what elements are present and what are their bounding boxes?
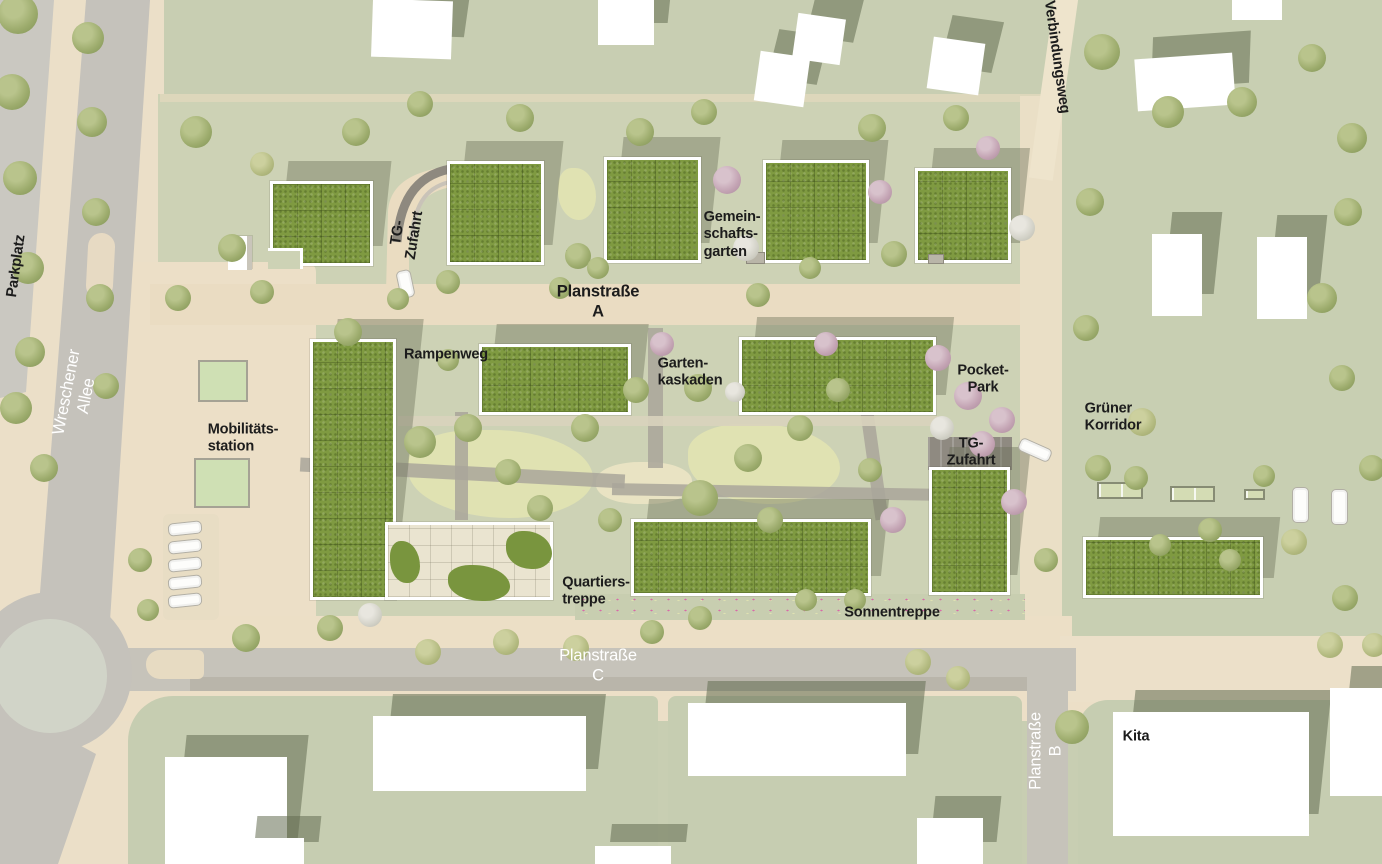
tree: [746, 283, 770, 307]
traffic-island: [146, 650, 204, 679]
block-sued: [631, 519, 871, 596]
label-planstrasse-c: Planstraße C: [559, 645, 637, 684]
tree: [1307, 283, 1337, 313]
label-mobilitaetsstation: Mobilitäts- station: [208, 421, 279, 456]
context-building: [688, 703, 906, 776]
tree: [799, 257, 821, 279]
tree: [436, 270, 460, 294]
tree: [976, 136, 1000, 160]
tree: [943, 105, 969, 131]
label-quartierstreppe: Quartiers- treppe: [562, 574, 630, 609]
label-gruener-korridor: Grüner Korridor: [1085, 400, 1142, 435]
tree: [407, 91, 433, 117]
tree: [795, 589, 817, 611]
tree: [946, 666, 970, 690]
tree: [1332, 585, 1358, 611]
tree: [1334, 198, 1362, 226]
tree: [77, 107, 107, 137]
tree: [905, 649, 931, 675]
roof-notch: [268, 248, 303, 269]
tree: [640, 620, 664, 644]
tree: [725, 382, 745, 402]
tree: [626, 118, 654, 146]
tree: [587, 257, 609, 279]
tree: [137, 599, 159, 621]
label-rampenweg: Rampenweg: [404, 345, 488, 362]
tree: [1076, 188, 1104, 216]
tree: [1085, 455, 1111, 481]
tree: [415, 639, 441, 665]
tree: [3, 161, 37, 195]
ramp-patch: [194, 458, 250, 508]
tree: [1073, 315, 1099, 341]
tree: [1253, 465, 1275, 487]
tree: [1359, 455, 1382, 481]
context-building: [1232, 0, 1282, 20]
tree: [1009, 215, 1035, 241]
context-building: [371, 0, 453, 59]
tree: [868, 180, 892, 204]
block-west: [310, 339, 396, 600]
tree: [404, 426, 436, 458]
context-building: [1330, 688, 1382, 796]
label-tg-zufahrt-mitte: TG-Zufahrt: [947, 435, 996, 470]
tree: [1317, 632, 1343, 658]
tree: [1124, 466, 1148, 490]
hof-nord-2: [447, 161, 544, 265]
label-planstrasse-b: Planstraße B: [1025, 712, 1064, 790]
block-nord-ost: [739, 337, 936, 415]
label-kita: Kita: [1123, 727, 1150, 744]
tree: [682, 480, 718, 516]
tree: [1034, 548, 1058, 572]
tree: [1219, 549, 1241, 571]
tree: [454, 414, 482, 442]
parked-car: [1331, 489, 1348, 525]
tree: [598, 508, 622, 532]
tree: [858, 458, 882, 482]
tree: [15, 337, 45, 367]
hof-nord-4: [763, 160, 869, 263]
tree: [688, 606, 712, 630]
tree: [571, 414, 599, 442]
context-building: [595, 846, 671, 864]
garage-row: [1244, 489, 1265, 500]
roof-garden-patch: [390, 541, 420, 583]
tree: [342, 118, 370, 146]
tree: [334, 318, 362, 346]
roof-garden-patch: [448, 565, 510, 601]
tree: [387, 288, 409, 310]
label-gartenkaskaden: Garten- kaskaden: [658, 355, 723, 390]
garden-path-north: [160, 94, 1052, 102]
tree: [506, 104, 534, 132]
hof-nord-3: [604, 157, 701, 263]
context-building: [240, 838, 304, 864]
tree: [826, 378, 850, 402]
tree: [1298, 44, 1326, 72]
site-plan-map: ParkplatzWreschener AlleeTG-ZufahrtVerbi…: [0, 0, 1382, 864]
tree: [713, 166, 741, 194]
context-building: [917, 818, 983, 864]
tree: [250, 152, 274, 176]
tree: [650, 332, 674, 356]
tree: [493, 629, 519, 655]
tree: [1362, 633, 1382, 657]
tree: [165, 285, 191, 311]
context-building: [598, 0, 654, 45]
tree: [881, 241, 907, 267]
hof-nord-5: [915, 168, 1011, 263]
label-sonnentreppe: Sonnentreppe: [844, 603, 939, 620]
ramp-patch: [198, 360, 248, 402]
tree: [787, 415, 813, 441]
tree: [1329, 365, 1355, 391]
roof-garden-patch: [506, 531, 552, 569]
tree: [1149, 534, 1171, 556]
tree: [880, 507, 906, 533]
tree: [250, 280, 274, 304]
tree: [1001, 489, 1027, 515]
tree: [72, 22, 104, 54]
label-pocket-park: Pocket-Park: [957, 362, 1008, 397]
tree: [989, 407, 1015, 433]
tree: [218, 234, 246, 262]
tree: [1152, 96, 1184, 128]
tree: [858, 114, 886, 142]
tree: [925, 345, 951, 371]
tree: [527, 495, 553, 521]
context-building: [1152, 234, 1202, 316]
tree: [30, 454, 58, 482]
context-building: [792, 13, 846, 65]
tree: [691, 99, 717, 125]
parked-car: [1292, 487, 1309, 523]
tree: [1281, 529, 1307, 555]
garage-row: [1170, 486, 1215, 502]
tree: [0, 392, 32, 424]
tree: [814, 332, 838, 356]
tree: [180, 116, 212, 148]
tree: [495, 459, 521, 485]
tree: [623, 377, 649, 403]
quartierstreppe-haus: [385, 522, 553, 600]
tree: [86, 284, 114, 312]
building-shadow: [610, 824, 688, 842]
tree: [734, 444, 762, 472]
tree: [757, 507, 783, 533]
block-ost: [929, 467, 1010, 595]
tree: [1227, 87, 1257, 117]
label-planstrasse-a: Planstraße A: [557, 281, 639, 320]
tree: [82, 198, 110, 226]
label-gemeinschaftsgarten: Gemein- schafts- garten: [704, 208, 761, 260]
tree: [1337, 123, 1367, 153]
context-building: [927, 37, 986, 96]
garden-shed: [928, 254, 944, 264]
tree: [1198, 518, 1222, 542]
tree: [358, 603, 382, 627]
tree: [317, 615, 343, 641]
tree: [128, 548, 152, 572]
tree: [232, 624, 260, 652]
context-building: [373, 716, 586, 791]
context-building: [1134, 53, 1235, 112]
block-nord-mitte: [479, 344, 631, 415]
tree: [1084, 34, 1120, 70]
context-building: [1257, 237, 1307, 319]
